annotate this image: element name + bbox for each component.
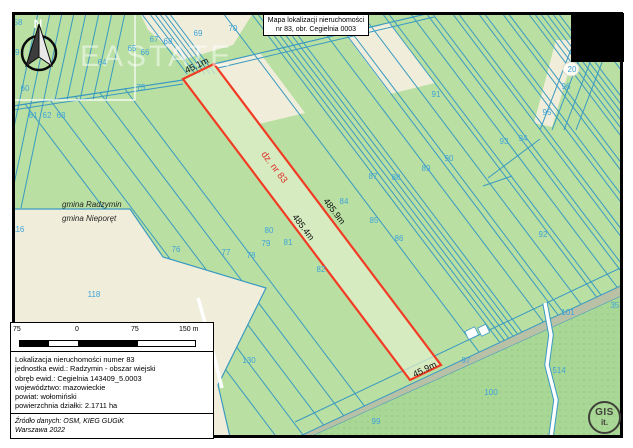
parcel-number-label: 67 [150,35,159,44]
redacted-box [571,13,624,62]
legend-panel: 75 0 75 150 m Lokalizacja nieruchomości … [10,322,214,439]
parcel-number-label: 85 [370,216,379,225]
parcel-number-label: 130 [242,356,256,365]
parcel-number-label: 86 [395,234,404,243]
parcel-number-label: 92 [539,230,548,239]
logo-line2: it. [590,419,619,427]
parcel-number-label: 78 [247,251,256,260]
property-info: Lokalizacja nieruchomości numer 83 jedno… [11,352,213,414]
scale-label-1: 0 [75,326,79,333]
parcel-number-label: 90 [445,154,454,163]
parcel-number-label: 70 [229,24,238,33]
parcel-number-label: 79 [262,239,271,248]
gis-it-logo: GIS it. [588,401,621,434]
parcel-number-label: 68 [164,37,173,46]
parcel-number-label: 118 [88,290,101,299]
parcel-number-label: 82 [317,265,326,274]
parcel-number-label: 84 [340,197,349,206]
scale-bar-graphic [19,340,196,347]
parcel-number-label: 89 [422,164,431,173]
data-source: Źródło danych: OSM, KIEG GUGiKWarszawa 2… [11,414,213,438]
map-title-line1: Mapa lokalizacji nieruchomości [264,16,368,25]
parcel-number-label: 95 [543,108,552,117]
parcel-number-label: 93 [500,137,509,146]
scale-bar: 75 0 75 150 m [11,323,213,352]
map-title-line2: nr 83, obr. Cegielnia 0003 [264,25,368,34]
source-line-0: Źródło danych: OSM, KIEG GUGiK [15,417,209,426]
admin-boundary-label: gmina Nieporęt [62,214,117,223]
scale-label-3: 150 m [179,326,198,333]
info-line-3: województwo: mazowieckie [15,383,209,392]
parcel-number-label: 100 [484,388,498,397]
admin-boundary-label: gmina Radzymin [62,200,122,209]
parcel-number-label: 75 [137,83,146,92]
parcel-number-label: 91 [432,90,441,99]
parcel-number-label: 77 [222,248,231,257]
watermark: EASTATE [80,40,233,73]
info-line-5: powierzchnia działki: 2.1711 ha [15,401,209,410]
parcel-number-label: 20 [568,65,577,74]
parcel-number-label: 63 [57,111,66,120]
info-line-1: jednostka ewid.: Radzymin - obszar wiejs… [15,364,209,373]
info-line-2: obręb ewid.: Cegielnia 143409_5.0003 [15,374,209,383]
parcel-number-label: 59 [11,48,20,57]
parcel-number-label: 81 [284,238,293,247]
map-page: EASTATE585960616263646566676869707576777… [0,0,633,448]
parcel-number-label: 87 [369,172,378,181]
parcel-number-label: 76 [172,245,181,254]
parcel-number-label: 61 [29,111,38,120]
parcel-number-label: 69 [194,29,203,38]
parcel-number-label: 64 [98,58,107,67]
parcel-number-label: 62 [43,111,52,120]
parcel-number-label: 101 [561,308,575,317]
parcel-number-label: 94 [519,134,528,143]
parcel-number-label: 60 [21,84,30,93]
scale-label-2: 75 [131,326,139,333]
parcel-number-label: 99 [372,417,381,426]
source-line-1: Warszawa 2022 [15,426,209,435]
parcel-number-label: 66 [141,48,150,57]
parcel-number-label: 514 [552,366,566,375]
parcel-number-label: 88 [392,173,401,182]
parcel-number-label: 96 [562,82,571,91]
parcel-number-label: 97 [462,356,471,365]
parcel-number-label: 80 [265,226,274,235]
info-line-0: Lokalizacja nieruchomości numer 83 [15,355,209,364]
parcel-number-label: 65 [128,44,137,53]
info-line-4: powiat: wołomiński [15,392,209,401]
scale-label-0: 75 [13,326,21,333]
map-title-box: Mapa lokalizacji nieruchomości nr 83, ob… [263,14,369,36]
